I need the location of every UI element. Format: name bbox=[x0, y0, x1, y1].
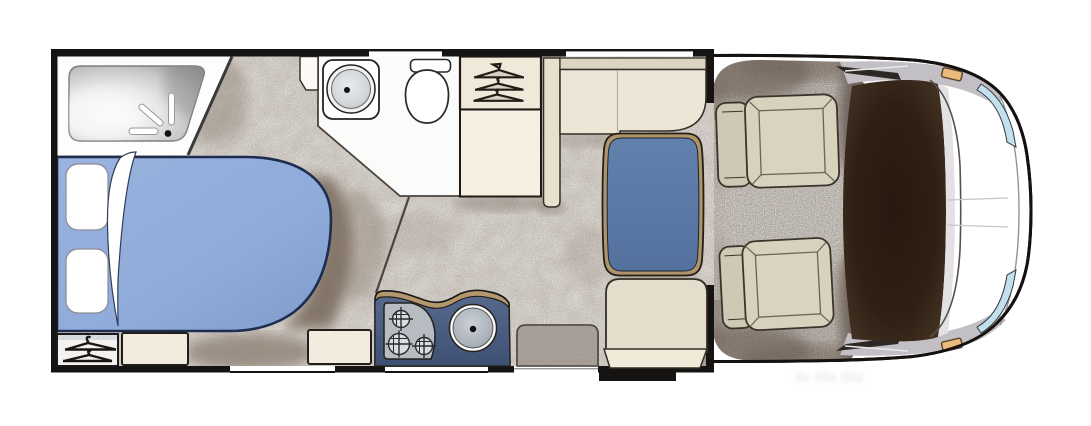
svg-text:lla Ilila Ilila: lla Ilila Ilila bbox=[795, 369, 864, 386]
